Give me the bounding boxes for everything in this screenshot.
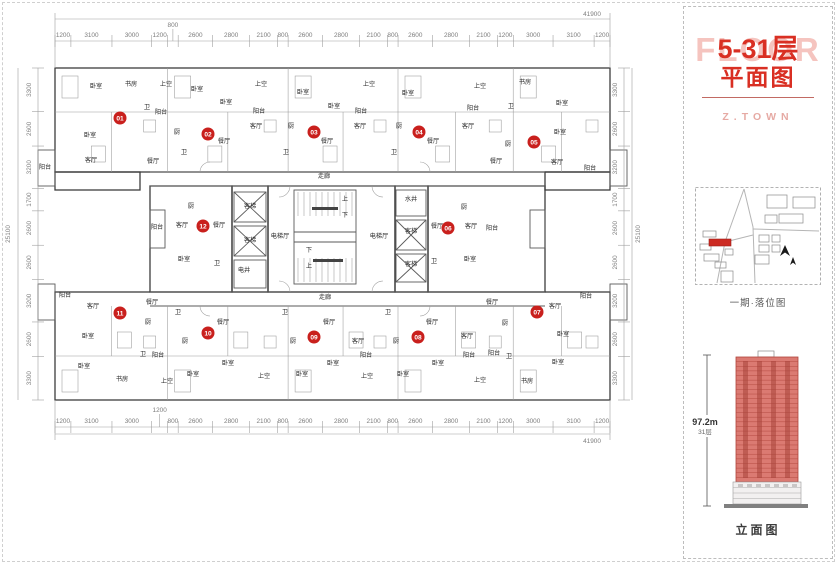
room-label: 走廊 bbox=[318, 172, 330, 180]
room-label: 客厅 bbox=[352, 337, 364, 345]
dimension-total: 25100 bbox=[5, 225, 12, 243]
room-label: 卧室 bbox=[402, 89, 414, 97]
dimension-label: 3200 bbox=[26, 160, 33, 175]
dimension-label: 3200 bbox=[612, 160, 619, 175]
dimension-label: 2800 bbox=[224, 32, 239, 39]
dimension-label: 1700 bbox=[26, 192, 33, 207]
dimension-label: 2800 bbox=[334, 418, 349, 425]
dimension-label: 2100 bbox=[366, 418, 381, 425]
room-label: 书房 bbox=[116, 375, 128, 383]
elevation-dimension: 97.2m 31层 bbox=[692, 355, 718, 506]
building-elevation: 97.2m 31层 bbox=[684, 345, 832, 517]
brand-logo: Z.TOWN bbox=[684, 111, 832, 123]
unit-number: 03 bbox=[310, 129, 318, 136]
plan-inner-walls bbox=[38, 150, 627, 320]
room-label: 阳台 bbox=[584, 164, 596, 172]
room-label: 卧室 bbox=[82, 332, 94, 340]
room-label: 卧室 bbox=[78, 362, 90, 370]
room-label: 卧室 bbox=[328, 102, 340, 110]
dimension-label: 2600 bbox=[612, 220, 619, 235]
room-label: 餐厅 bbox=[146, 298, 158, 306]
dimension-label: 800 bbox=[277, 418, 288, 425]
site-map-caption: 一期·落位图 bbox=[684, 295, 832, 309]
room-label: 客梯 bbox=[244, 202, 256, 210]
room-label: 餐厅 bbox=[147, 157, 159, 165]
room-label: 阳台 bbox=[151, 223, 163, 231]
dimension-label: 3300 bbox=[26, 82, 33, 97]
room-label: 厨 bbox=[502, 320, 508, 327]
unit-number: 07 bbox=[533, 309, 541, 316]
dimension-label: 2600 bbox=[408, 418, 423, 425]
room-label: 客厅 bbox=[176, 221, 188, 229]
unit-number: 04 bbox=[415, 129, 423, 136]
room-label: 卧室 bbox=[297, 88, 309, 96]
unit-interior-lines bbox=[55, 68, 610, 400]
room-label: 阳台 bbox=[463, 351, 475, 359]
room-label: 卫 bbox=[214, 260, 220, 267]
dimension-label: 800 bbox=[168, 418, 179, 425]
room-label: 上空 bbox=[255, 80, 267, 88]
dimension-label: 2100 bbox=[476, 32, 491, 39]
dimension-label: 2600 bbox=[26, 220, 33, 235]
room-label: 卫 bbox=[385, 309, 391, 316]
unit-number: 09 bbox=[310, 334, 318, 341]
room-label: 卫 bbox=[175, 309, 181, 316]
room-label: 卧室 bbox=[220, 98, 232, 106]
room-label: 走廊 bbox=[319, 293, 331, 301]
floor-plan: 1200310030001200800260028002100800260028… bbox=[0, 0, 660, 564]
room-label: 卫 bbox=[391, 149, 397, 156]
room-label: 卫 bbox=[144, 104, 150, 111]
room-label: 阳台 bbox=[488, 349, 500, 357]
unit-number: 02 bbox=[204, 131, 212, 138]
room-label: 餐厅 bbox=[486, 298, 498, 306]
room-label: 厨 bbox=[393, 338, 399, 345]
room-label: 卫 bbox=[282, 309, 288, 316]
dimension-label: 2100 bbox=[476, 418, 491, 425]
room-label: 水井 bbox=[405, 195, 417, 203]
room-label: 阳台 bbox=[253, 107, 265, 115]
dimension-total: 25100 bbox=[635, 225, 642, 243]
room-label: 客厅 bbox=[85, 156, 97, 164]
unit-number: 11 bbox=[117, 310, 124, 317]
room-label: 卫 bbox=[506, 353, 512, 360]
unit-badge-02: 02 bbox=[202, 128, 215, 141]
unit-badge-05: 05 bbox=[528, 136, 541, 149]
room-label: 阳台 bbox=[39, 163, 51, 171]
elevation-height-label: 97.2m bbox=[692, 417, 718, 427]
road bbox=[717, 189, 744, 283]
dimension-label: 3000 bbox=[526, 418, 541, 425]
room-label: 卫 bbox=[508, 103, 514, 110]
unit-number: 10 bbox=[204, 330, 212, 337]
title-divider bbox=[702, 97, 814, 98]
highlighted-building bbox=[709, 239, 731, 246]
room-label: 客梯 bbox=[405, 260, 417, 268]
room-label: 餐厅 bbox=[213, 221, 225, 229]
dimension-label: 3200 bbox=[26, 293, 33, 308]
unit-badge-12: 12 bbox=[197, 220, 210, 233]
dimension-total: 41900 bbox=[583, 11, 601, 18]
road bbox=[753, 229, 819, 231]
room-label: 书房 bbox=[521, 377, 533, 385]
room-label: 卫 bbox=[181, 149, 187, 156]
room-label: 卧室 bbox=[397, 370, 409, 378]
room-label: 卧室 bbox=[90, 82, 102, 90]
dimension-label: 2600 bbox=[26, 332, 33, 347]
room-label: 上空 bbox=[363, 80, 375, 88]
utility-shaft bbox=[396, 190, 426, 216]
room-label: 阳台 bbox=[59, 291, 71, 299]
dimension-label: 1200 bbox=[56, 32, 71, 39]
room-label: 卧室 bbox=[296, 370, 308, 378]
dimension-label: 2600 bbox=[188, 418, 203, 425]
balcony-outline bbox=[530, 210, 545, 248]
elevation-tower bbox=[724, 351, 808, 508]
room-label: 厨 bbox=[145, 319, 151, 326]
unit-badge-06: 06 bbox=[442, 222, 455, 235]
dimension-label: 1200 bbox=[153, 407, 168, 414]
room-label: 厨 bbox=[396, 123, 402, 130]
room-label: 书房 bbox=[519, 78, 531, 86]
room-label: 卧室 bbox=[327, 359, 339, 367]
room-label: 上空 bbox=[474, 376, 486, 384]
room-label: 餐厅 bbox=[321, 137, 333, 145]
dimension-label: 3100 bbox=[566, 32, 581, 39]
room-label: 卧室 bbox=[191, 85, 203, 93]
room-label: 下 bbox=[306, 247, 312, 254]
elevation-caption: 立面图 bbox=[684, 521, 832, 538]
room-label: 上空 bbox=[160, 80, 172, 88]
unit-badge-08: 08 bbox=[412, 331, 425, 344]
room-label: 卫 bbox=[431, 258, 437, 265]
room-label: 餐厅 bbox=[426, 318, 438, 326]
room-label: 卧室 bbox=[552, 358, 564, 366]
room-label: 阳台 bbox=[355, 107, 367, 115]
unit-badge-11: 11 bbox=[114, 307, 127, 320]
room-label: 卧室 bbox=[84, 131, 96, 139]
room-label: 客厅 bbox=[551, 158, 563, 166]
room-label: 上空 bbox=[161, 377, 173, 385]
dimension-label: 3100 bbox=[566, 418, 581, 425]
room-label: 卧室 bbox=[556, 99, 568, 107]
dimension-label: 2100 bbox=[257, 32, 272, 39]
room-label: 卧室 bbox=[554, 128, 566, 136]
dimension-label: 2600 bbox=[612, 332, 619, 347]
room-label: 阳台 bbox=[152, 351, 164, 359]
room-label: 餐厅 bbox=[490, 157, 502, 165]
room-label: 客厅 bbox=[465, 222, 477, 230]
room-label: 卧室 bbox=[178, 255, 190, 263]
dimension-label: 1200 bbox=[498, 32, 513, 39]
room-label: 上 bbox=[306, 262, 312, 270]
unit-number: 01 bbox=[116, 115, 124, 122]
dimension-label: 3100 bbox=[84, 418, 99, 425]
unit-number: 06 bbox=[444, 225, 452, 232]
unit-badge-10: 10 bbox=[202, 327, 215, 340]
room-label: 阳台 bbox=[360, 351, 372, 359]
dimension-label: 3200 bbox=[612, 293, 619, 308]
room-label: 餐厅 bbox=[218, 137, 230, 145]
stairwell bbox=[294, 190, 356, 284]
dimension-label: 3300 bbox=[26, 371, 33, 386]
room-label: 电梯厅 bbox=[271, 232, 290, 240]
unit-number: 05 bbox=[530, 139, 538, 146]
dimension-label: 800 bbox=[387, 418, 398, 425]
room-label: 厨 bbox=[461, 204, 467, 211]
dimension-label: 2600 bbox=[298, 32, 313, 39]
room-label: 卧室 bbox=[187, 370, 199, 378]
dimension-label: 2600 bbox=[298, 418, 313, 425]
dimension-label: 2600 bbox=[26, 255, 33, 270]
room-label: 客厅 bbox=[462, 122, 474, 130]
room-label: 餐厅 bbox=[427, 137, 439, 145]
room-label: 厨 bbox=[505, 141, 511, 148]
dimension-label: 3300 bbox=[612, 371, 619, 386]
room-label: 阳台 bbox=[486, 224, 498, 232]
room-label: 书房 bbox=[125, 80, 137, 88]
dimension-label: 2800 bbox=[224, 418, 239, 425]
room-label: 客厅 bbox=[461, 332, 473, 340]
dimension-label: 2800 bbox=[444, 418, 459, 425]
unit-badge-03: 03 bbox=[308, 126, 321, 139]
dimension-label: 1700 bbox=[612, 192, 619, 207]
room-label: 卫 bbox=[140, 351, 146, 358]
dimension-label: 3000 bbox=[125, 32, 140, 39]
plan-title-label: 平面图 bbox=[684, 58, 832, 92]
dimension-label: 1200 bbox=[595, 32, 610, 39]
room-label: 下 bbox=[342, 212, 348, 219]
dimension-label: 2600 bbox=[26, 121, 33, 136]
room-label: 阳台 bbox=[155, 108, 167, 116]
info-panel: FLOOR 5-31层 平面图 Z.TOWN 一期·落位图 bbox=[683, 6, 833, 559]
north-arrow-icon bbox=[780, 245, 796, 265]
utility-shaft bbox=[234, 260, 266, 288]
room-label: 厨 bbox=[188, 203, 194, 210]
dimension-label: 3000 bbox=[526, 32, 541, 39]
title-block: FLOOR 5-31层 平面图 bbox=[684, 25, 832, 97]
room-label: 厨 bbox=[288, 123, 294, 130]
unit-badge-04: 04 bbox=[413, 126, 426, 139]
room-label: 餐厅 bbox=[217, 318, 229, 326]
room-label: 厨 bbox=[290, 338, 296, 345]
dimension-label: 2600 bbox=[612, 255, 619, 270]
site-location-map bbox=[695, 187, 821, 287]
dimension-label: 1200 bbox=[498, 418, 513, 425]
room-label: 餐厅 bbox=[323, 318, 335, 326]
room-label: 电井 bbox=[238, 266, 250, 274]
room-label: 客梯 bbox=[405, 227, 417, 235]
room-label: 上空 bbox=[258, 372, 270, 380]
room-label: 厨 bbox=[182, 338, 188, 345]
room-label: 阳台 bbox=[467, 104, 479, 112]
dimension-label: 1200 bbox=[153, 32, 168, 39]
room-label: 卫 bbox=[283, 149, 289, 156]
room-label: 餐厅 bbox=[431, 222, 443, 230]
room-label: 阳台 bbox=[580, 292, 592, 300]
unit-badge-09: 09 bbox=[308, 331, 321, 344]
room-label: 卧室 bbox=[464, 255, 476, 263]
room-label: 卧室 bbox=[222, 359, 234, 367]
dimension-label: 3000 bbox=[125, 418, 140, 425]
dimension-label: 1200 bbox=[56, 418, 71, 425]
room-label: 客厅 bbox=[87, 302, 99, 310]
unit-number: 12 bbox=[199, 223, 207, 230]
balcony-outline bbox=[38, 284, 55, 320]
unit-badge-01: 01 bbox=[114, 112, 127, 125]
dimension-total: 41900 bbox=[583, 438, 601, 445]
dimension-label: 2600 bbox=[188, 32, 203, 39]
dimension-label: 2800 bbox=[444, 32, 459, 39]
unit-number: 08 bbox=[414, 334, 422, 341]
room-label: 客梯 bbox=[244, 236, 256, 244]
dimension-label: 2100 bbox=[366, 32, 381, 39]
dimension-lines: 1200310030001200800260028002100800260028… bbox=[5, 11, 642, 445]
room-label: 客厅 bbox=[549, 302, 561, 310]
elevation-floor-count-label: 31层 bbox=[698, 428, 712, 436]
room-label: 上空 bbox=[474, 82, 486, 90]
room-label: 上 bbox=[342, 195, 348, 203]
dimension-label: 2600 bbox=[612, 121, 619, 136]
dimension-label: 2100 bbox=[257, 418, 272, 425]
room-label: 客厅 bbox=[354, 122, 366, 130]
room-label: 客厅 bbox=[250, 122, 262, 130]
room-label: 卧室 bbox=[432, 359, 444, 367]
dimension-label: 3300 bbox=[612, 82, 619, 97]
room-label: 上空 bbox=[361, 372, 373, 380]
dimension-label: 1200 bbox=[595, 418, 610, 425]
building-footprints bbox=[700, 195, 815, 282]
room-label: 卧室 bbox=[557, 330, 569, 338]
dimension-label: 2600 bbox=[408, 32, 423, 39]
dimension-label: 3100 bbox=[84, 32, 99, 39]
dimension-label: 800 bbox=[277, 32, 288, 39]
dimension-label: 800 bbox=[387, 32, 398, 39]
plan-outer-walls bbox=[55, 68, 610, 400]
room-label: 电梯厅 bbox=[370, 232, 389, 240]
dimension-label: 2800 bbox=[334, 32, 349, 39]
unit-badge-07: 07 bbox=[531, 306, 544, 319]
dimension-label: 800 bbox=[168, 22, 179, 29]
room-label: 厨 bbox=[174, 129, 180, 136]
